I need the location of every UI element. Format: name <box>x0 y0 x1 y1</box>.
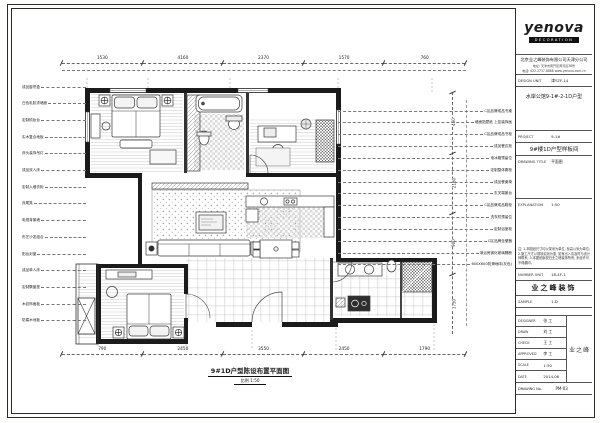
sofa-icon <box>158 240 250 256</box>
number-unit-row: NUMBER UNIT 18-4F-1 <box>516 268 592 280</box>
explanation-row: EXPLANATION 1:50 <box>516 198 592 210</box>
left-annotation-labels: 成品窗帘盒 白色乳胶漆墙面 定制梳妆台 实木复合地板 床头装饰吊灯 成品双人床 <box>22 84 86 324</box>
dimension-segment: 4160 <box>143 56 224 66</box>
notes-text: 注: 1.本图纸尺寸均以毫米为单位, 标高以米为单位; 2.施工尺寸以现场实测为… <box>518 247 590 266</box>
company-name: 北京业之峰装饰有限公司天津分公司 <box>518 57 590 63</box>
floor-drain <box>336 298 345 307</box>
leader-line <box>338 253 479 254</box>
annotation-label: 定制浴室柜 <box>338 226 512 232</box>
leader-line <box>41 270 86 271</box>
leader-line <box>338 217 489 218</box>
leader-line <box>41 220 86 221</box>
leader-line <box>48 103 86 104</box>
top-dimension-line-2 <box>62 70 466 71</box>
signature-row: CHECK王 工 <box>516 338 566 349</box>
sample-row: SAMPLE 1-D <box>516 295 592 307</box>
spacer <box>516 168 592 198</box>
annotation-label: 布艺沙发组合 <box>22 234 86 240</box>
dimension-segment: 1570 <box>304 56 385 66</box>
top-dimension-row: 1530416023701570760 <box>62 56 466 66</box>
signature-row: DATE2014.06 <box>516 371 566 382</box>
annotation-label: 墙面贴壁纸 上挂装饰画 <box>338 120 512 126</box>
caption-scale: 比例 1:50 <box>234 378 265 385</box>
dimension-segment: 2450 <box>143 347 224 357</box>
counter-side <box>324 207 334 237</box>
dimension-segment: 1530 <box>62 56 143 66</box>
drawing-caption: 9#1D户型陈设布置平面图 比例 1:50 <box>160 358 340 385</box>
leader-line <box>338 170 489 171</box>
leader-line <box>34 203 86 204</box>
title-block: yenova DECORATION 北京业之峰装饰有限公司天津分公司 地址: 天… <box>515 8 592 414</box>
project-name-block: 水岸公馆9-1#-2-1D户型 <box>516 86 592 106</box>
annotation-label: 600X600防滑地砖(灰色) <box>338 262 512 268</box>
annotation-label: 玄关端景台 <box>338 191 512 197</box>
annotation-label: 定制入墙衣柜 <box>22 184 86 190</box>
annotation-label: 床头装饰吊灯 <box>22 151 86 157</box>
annotation-label: 白色乳胶漆墙面 <box>22 101 86 107</box>
signature-table: DESIGNER张 工 DRAW刘 工 CHECK王 工 APPROVED李 工 <box>516 315 592 382</box>
fridge-icon <box>246 209 258 222</box>
leader-line <box>37 254 86 255</box>
signature-row: DRAW刘 工 <box>516 327 566 338</box>
annotation-label: 木纹饰面板 <box>22 301 86 307</box>
leader-line <box>338 205 483 206</box>
leader-line <box>45 153 86 154</box>
annotation-label: 成品餐边柜 <box>338 144 512 150</box>
company-contact: 电话: 022-2737-8888 www.yenova.com.cn <box>520 68 588 73</box>
tv-cabinet-icon <box>152 183 248 189</box>
brand-row: 业之峰装饰 <box>516 280 592 295</box>
annotation-label: 成品双人床 <box>22 168 86 174</box>
annotation-label: 阳台封窗 <box>22 251 86 257</box>
leader-line <box>41 287 86 288</box>
design-unit-row: DESIGN UNIT 津YZF-14 <box>516 74 592 86</box>
leader-line <box>41 304 86 305</box>
project-cn-row: 9#楼1D户型样板间 <box>516 142 592 156</box>
leader-line <box>338 193 493 194</box>
leader-line <box>41 120 86 121</box>
leader-line <box>45 137 86 138</box>
leader-line <box>338 146 493 147</box>
leader-line <box>338 158 489 159</box>
bed-bench-icon <box>120 140 152 148</box>
drawing-no-row: DRAWING No. PM-03 <box>516 382 592 394</box>
annotation-label: 定制梳妆台 <box>22 117 86 123</box>
vanity-icon <box>91 114 100 138</box>
annotation-label: 成品单人床 <box>22 268 86 274</box>
stamp-cell: 业之峰 <box>566 316 592 382</box>
leader-line <box>338 111 483 112</box>
dimension-segment: 3550 <box>223 347 304 357</box>
drawing-title-row: DRAWING TITLE 平面图 <box>516 156 592 168</box>
bottom-dimension-row: 7902450355024501790 <box>62 347 466 357</box>
bookcase-icon <box>316 120 334 162</box>
leader-line <box>338 229 493 230</box>
spacer <box>516 394 592 414</box>
annotation-label: 定制飘窗垫 <box>22 284 86 290</box>
annotation-label: 成品窗帘盒 <box>22 84 86 90</box>
annotation-label: 床尾凳 <box>22 201 86 207</box>
annotation-label: 实木复合地板 <box>22 134 86 140</box>
dimension-segment: 2370 <box>223 56 304 66</box>
signature-row: SCALE1:50 <box>516 360 566 371</box>
study-rug <box>256 148 290 166</box>
logo-area: yenova DECORATION <box>516 8 592 54</box>
leader-line <box>45 187 86 188</box>
annotation-label: 防腐木地板 <box>22 318 86 324</box>
caption-title: 9#1D户型陈设布置平面图 <box>208 365 292 377</box>
annotation-label: C区品牌坐便器 <box>338 238 512 244</box>
dimension-segment: 2450 <box>304 347 385 357</box>
yenova-logo: yenova <box>524 20 584 36</box>
spacer <box>516 106 592 130</box>
leader-line <box>338 122 474 123</box>
leader-line <box>338 241 487 242</box>
drawing-sheet: 1530416023701570760 7902450355024501790 … <box>0 0 600 423</box>
dimension-segment: 760 <box>384 56 465 66</box>
leader-line <box>41 320 86 321</box>
annotation-label: 定制整体橱柜 <box>338 167 512 173</box>
logo-subtitle: DECORATION <box>529 37 580 43</box>
leader-line <box>41 87 86 88</box>
signature-row: APPROVED李 工 <box>516 349 566 360</box>
dimension-segment: 790 <box>62 347 143 357</box>
company-info: 北京业之峰装饰有限公司天津分公司 地址: 天津市南开区黄河道38号 电话: 02… <box>516 54 592 74</box>
signature-row: DESIGNER张 工 <box>516 316 566 327</box>
leader-line <box>45 237 86 238</box>
notes-area: 注: 1.本图纸尺寸均以毫米为单位, 标高以米为单位; 2.施工尺寸以现场实测为… <box>516 210 592 268</box>
dimension-segment: 1790 <box>384 347 465 357</box>
leader-line <box>338 182 493 183</box>
leader-line <box>41 170 86 171</box>
annotation-label: 洗衣机预留位 <box>338 215 512 221</box>
right-annotation-labels: C区品牌成品书桌 墙面贴壁纸 上挂装饰画 C区品牌成品书柜 成品餐边柜 电冰箱预… <box>338 108 512 268</box>
annotation-label: C区品牌成品鞋柜 <box>338 203 512 209</box>
leader-line <box>338 264 470 265</box>
annotation-label: 淋浴房钢化玻璃隔断 <box>338 250 512 256</box>
annotation-label: 电冰箱预留位 <box>338 155 512 161</box>
project-row: PROJECT 9-1# <box>516 130 592 142</box>
annotation-label: 电视背景墙 <box>22 218 86 224</box>
annotation-label: 成品餐桌椅 <box>338 179 512 185</box>
annotation-label: C区品牌成品书柜 <box>338 132 512 138</box>
annotation-label: C区品牌成品书桌 <box>338 108 512 114</box>
leader-line <box>338 134 483 135</box>
corridor-tiles <box>186 258 332 322</box>
spacer <box>516 307 592 315</box>
